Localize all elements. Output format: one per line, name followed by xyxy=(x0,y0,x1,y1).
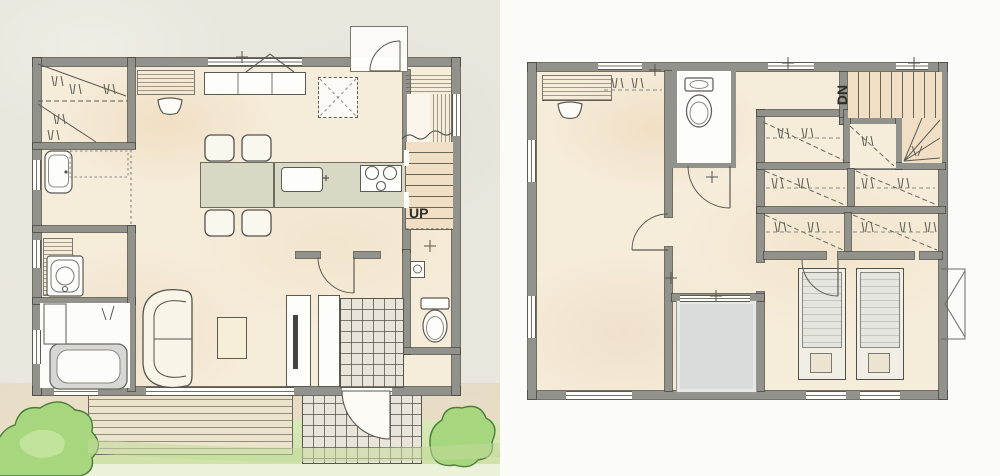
pillow xyxy=(868,353,890,373)
front-door-opening xyxy=(342,387,392,396)
tv-board xyxy=(286,295,311,387)
wall-segment xyxy=(764,252,826,259)
wall-segment xyxy=(403,250,410,354)
stair-storage-shelf xyxy=(406,72,452,92)
dining-table xyxy=(200,162,274,208)
wood-deck xyxy=(88,392,293,455)
coffee-table xyxy=(217,317,247,359)
mattress xyxy=(860,272,900,348)
window-sliding-living xyxy=(146,387,294,396)
wall-segment xyxy=(33,226,135,232)
wall-segment xyxy=(848,169,854,209)
kitchen-side-shelf xyxy=(137,70,195,95)
window xyxy=(566,391,632,400)
stair-storage-louver xyxy=(430,94,450,142)
entrance-approach-tiles xyxy=(302,392,422,464)
window xyxy=(527,140,536,182)
pillow xyxy=(810,353,832,373)
porch-door-opening xyxy=(352,58,406,66)
toilet2-room xyxy=(672,68,736,168)
kitchen-back-counter xyxy=(204,72,306,95)
stair-wall-vent xyxy=(404,150,409,166)
wall-segment xyxy=(845,213,851,253)
stairs-up-label: UP xyxy=(409,206,428,220)
wall-segment xyxy=(665,247,672,391)
mattress xyxy=(802,272,842,348)
balcony xyxy=(676,300,757,393)
wall-segment xyxy=(757,292,764,391)
wall-segment xyxy=(33,143,135,149)
wall-segment xyxy=(757,110,764,262)
window xyxy=(768,62,814,70)
window xyxy=(896,62,928,70)
wall-segment xyxy=(403,348,460,354)
single-bed xyxy=(798,268,846,380)
genkan-tile-floor xyxy=(340,298,404,388)
wall-segment xyxy=(838,252,914,259)
cooktop xyxy=(360,165,402,192)
stair-wall-vent xyxy=(404,192,409,208)
wall-segment xyxy=(354,252,380,258)
window xyxy=(32,330,41,364)
study-counter xyxy=(542,75,612,101)
window xyxy=(452,94,461,136)
stair-storage-floor xyxy=(407,94,430,142)
bathroom-floor xyxy=(40,303,130,388)
window xyxy=(598,62,642,70)
window xyxy=(860,391,900,400)
window xyxy=(32,240,41,268)
under-stair-closet xyxy=(850,124,896,168)
window xyxy=(806,391,846,400)
window xyxy=(527,296,536,338)
window xyxy=(208,58,302,66)
wall-segment xyxy=(128,58,135,148)
single-bed xyxy=(856,268,904,380)
lawn-edge-strip xyxy=(0,464,500,476)
wall-segment xyxy=(528,63,536,399)
wall-segment xyxy=(296,252,320,258)
wall-segment xyxy=(528,63,947,71)
toilet1-hand-basin xyxy=(410,261,425,278)
wall-segment xyxy=(665,71,672,217)
wall-segment xyxy=(920,252,942,259)
window xyxy=(54,387,98,396)
staircase-floor2-winder xyxy=(902,118,942,163)
island-sink xyxy=(281,167,323,192)
wall-segment xyxy=(757,110,847,116)
linen-shelf xyxy=(43,238,73,296)
shoe-cabinet xyxy=(318,295,340,387)
window xyxy=(32,160,41,190)
wall-segment xyxy=(757,207,945,213)
stairs-down-label: DN xyxy=(835,85,849,105)
staircase-floor2-upper xyxy=(848,72,942,118)
refrigerator xyxy=(318,77,358,118)
balcony-sliding-window xyxy=(680,295,750,302)
floor-plan-canvas: UP DN xyxy=(0,0,1000,476)
